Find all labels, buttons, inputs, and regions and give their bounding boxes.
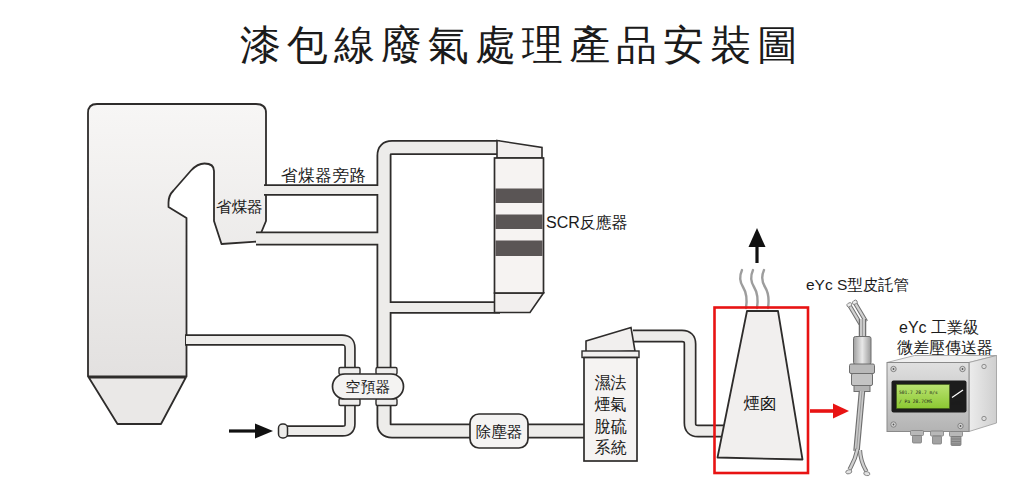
eyc-logo: eYc: [952, 400, 962, 406]
pipe-combustion-air-fill: [186, 340, 350, 431]
cable-gland-body: [933, 436, 942, 444]
boiler-hopper: [89, 378, 186, 425]
pitot-tube: [845, 299, 874, 476]
pitot-union-nut: [852, 374, 873, 386]
label-fgd-line4: 系統: [595, 438, 627, 456]
lcd-line2: / Pa 28.7CMS: [899, 399, 932, 404]
label-pitot: eYc S型皮託管: [806, 276, 909, 293]
label-fgd-line3: 脫硫: [595, 418, 627, 435]
screw: [982, 416, 986, 420]
label-fgd-line2: 煙氣: [595, 396, 627, 413]
label-economizer-bypass: 省煤器旁路: [281, 166, 367, 184]
fgd-base-plate: [582, 351, 639, 358]
pipe-fgd-to-chimney: [633, 336, 731, 431]
cable-gland-body: [913, 436, 922, 444]
red-right-arrow-head: [833, 404, 849, 419]
label-chimney: 煙囪: [744, 394, 777, 412]
smoke-lines: [740, 270, 768, 308]
right-arrow-head: [255, 424, 273, 439]
scr-catalyst-band: [496, 215, 543, 230]
chimney-body: [718, 311, 803, 460]
label-transmitter-line2: 微差壓傳送器: [897, 339, 993, 356]
pitot-union-collar: [854, 386, 870, 392]
label-economizer: 省煤器: [216, 198, 263, 215]
pipe-fills: [186, 148, 732, 432]
lcd-line1: 501.7 28.7 m/s: [899, 390, 938, 395]
cable-gland: [931, 431, 944, 436]
chimney-group: [718, 228, 803, 460]
scr-top-cap: [497, 141, 542, 159]
screw-dot: [893, 424, 895, 426]
air-inlet-arrow: [229, 424, 273, 439]
pipe-fgd-to-chimney-fill: [633, 336, 732, 431]
pipe-combustion-air: [185, 340, 350, 431]
smoke-line: [751, 270, 757, 308]
measurement-link-arrow: [810, 404, 849, 419]
cable-glands: [911, 431, 963, 446]
cable-gland: [950, 432, 963, 437]
lcd-screen: [897, 385, 950, 409]
screw-dot: [960, 425, 962, 427]
label-air-preheater: 空預器: [346, 378, 391, 395]
pitot-union-flange: [850, 364, 875, 374]
pitot-union-sleeve: [854, 337, 872, 365]
dp-transmitter: 501.7 28.7 m/s / Pa 28.7CMS eYc: [887, 356, 997, 446]
scr-catalyst-band: [496, 241, 543, 257]
label-scr: SCR反應器: [546, 214, 628, 231]
cable-gland: [911, 431, 924, 436]
pipe-main-duct: [384, 148, 586, 432]
air-inlet-pipe-cap: [279, 424, 288, 438]
screw-dot: [962, 368, 964, 370]
pipe-main-duct-fill: [384, 148, 587, 432]
label-dust-collector: 除塵器: [476, 423, 523, 440]
installation-diagram: 漆包線廢氣處理產品安裝圖: [0, 0, 1017, 502]
pitot-fork-port: [845, 469, 852, 474]
smoke-line: [762, 270, 768, 308]
label-fgd-line1: 濕法: [595, 374, 627, 391]
scr-catalyst-band: [496, 189, 543, 204]
up-arrow-head: [749, 228, 766, 247]
smoke-line: [740, 270, 746, 308]
page-title: 漆包線廢氣處理產品安裝圖: [240, 22, 804, 68]
installation-diagram-page: 漆包線廢氣處理產品安裝圖: [0, 0, 1017, 502]
label-transmitter-line1: eYc 工業級: [899, 319, 979, 336]
pitot-fork-port: [863, 471, 870, 476]
fgd-cap: [586, 328, 635, 354]
screw: [982, 364, 986, 368]
screw-dot: [893, 368, 895, 370]
scr-bottom-cap: [495, 293, 544, 313]
scr-catalyst-bands: [496, 189, 543, 257]
